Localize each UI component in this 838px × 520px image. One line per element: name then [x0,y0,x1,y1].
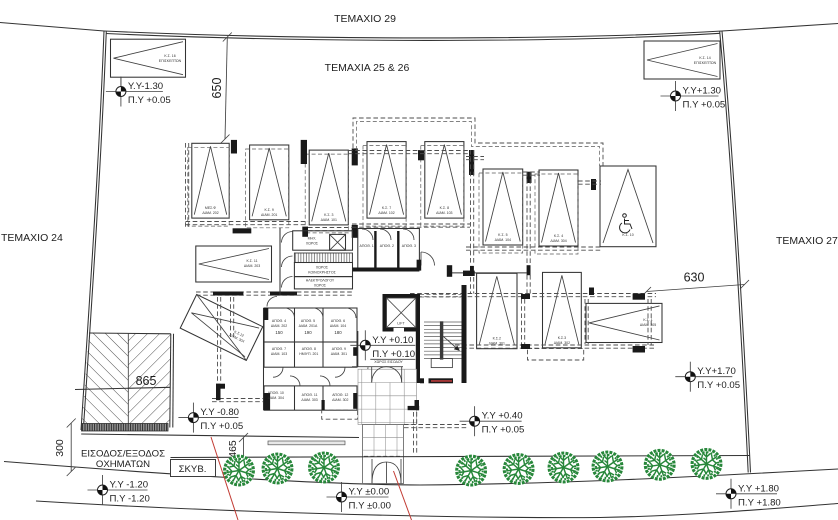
svg-text:LIFT: LIFT [397,322,405,326]
svg-text:Κ.Σ.3: Κ.Σ.3 [558,336,566,340]
svg-text:650: 650 [210,78,224,99]
svg-text:ΑΠΟΘ. 2: ΑΠΟΘ. 2 [380,244,394,248]
svg-text:ΑΠΟΘ. 1: ΑΠΟΘ. 1 [359,244,373,248]
svg-text:ΑΠΟΘ. 12: ΑΠΟΘ. 12 [332,393,348,397]
svg-text:ΑΠΟΘ. 6: ΑΠΟΘ. 6 [331,319,345,323]
svg-text:Κ.Σ. 9: Κ.Σ. 9 [265,208,274,212]
svg-text:Κ.Σ. 3: Κ.Σ. 3 [324,213,333,217]
svg-text:190: 190 [304,330,312,335]
svg-text:ΑΠΟΘ. 7: ΑΠΟΘ. 7 [272,347,286,351]
svg-text:ΔΙΑΜ. 201: ΔΙΑΜ. 201 [261,213,277,217]
svg-text:ΔΙΑΜ. 101: ΔΙΑΜ. 101 [321,218,337,222]
svg-text:Κ.Σ. 7: Κ.Σ. 7 [382,206,391,210]
svg-text:ΔΙΑΜ. 104: ΔΙΑΜ. 104 [495,238,511,242]
svg-text:Υ.Υ +1.80: Υ.Υ +1.80 [738,483,779,494]
svg-text:Υ.Υ-1.30: Υ.Υ-1.30 [128,81,163,92]
svg-text:ΔΙΑΜ. 303: ΔΙΑΜ. 303 [301,398,317,402]
svg-text:ΧΩΡΟΣ: ΧΩΡΟΣ [314,284,327,288]
svg-text:ΗΛΕΚΤΡΟΛΟΓΟΥ: ΗΛΕΚΤΡΟΛΟΓΟΥ [306,279,335,283]
svg-text:865: 865 [136,374,157,388]
svg-text:ΑΠΟΘ. 8: ΑΠΟΘ. 8 [302,347,316,351]
svg-text:ΔΙΑΜ. 102: ΔΙΑΜ. 102 [378,211,394,215]
svg-text:Κ.Σ. 16: Κ.Σ. 16 [164,54,175,58]
svg-text:ΔΙΑΜ. 203: ΔΙΑΜ. 203 [244,264,260,268]
svg-text:Κ.Σ. 8: Κ.Σ. 8 [440,206,449,210]
svg-text:ΔΙΑΜ. 301: ΔΙΑΜ. 301 [331,352,347,356]
svg-text:ΑΠΟΘ. 4: ΑΠΟΘ. 4 [272,319,286,323]
svg-text:ΑΠΟΘ. 9: ΑΠΟΘ. 9 [332,347,346,351]
svg-text:ΑΠΟΘ. 10: ΑΠΟΘ. 10 [268,391,284,395]
svg-text:Π.Υ +0.05: Π.Υ +0.05 [683,100,726,111]
svg-text:ΔΙΑΜ. 302: ΔΙΑΜ. 302 [554,341,570,345]
svg-text:Π.Υ +1.80: Π.Υ +1.80 [738,497,781,508]
svg-text:ΟΧΗΜΑΤΩΝ: ΟΧΗΜΑΤΩΝ [96,459,150,470]
svg-text:ΔΙΑΜ. 202: ΔΙΑΜ. 202 [271,324,287,328]
svg-text:Υ.Υ ±0.00: Υ.Υ ±0.00 [349,487,390,498]
svg-text:ΔΙΑΜ. 202: ΔΙΑΜ. 202 [202,211,218,215]
svg-text:Υ.Υ +0.10: Υ.Υ +0.10 [372,335,413,346]
svg-text:630: 630 [684,271,705,285]
svg-text:ΜΗΧ.: ΜΗΧ. [308,237,317,241]
svg-text:Π.Υ ±0.00: Π.Υ ±0.00 [349,501,391,512]
svg-text:ΗΜΙΥΠ. 201: ΗΜΙΥΠ. 201 [299,352,318,356]
svg-text:Κ.Σ. 11: Κ.Σ. 11 [246,259,257,263]
svg-text:ΕΠΙΣΚΕΠΤΩΝ: ΕΠΙΣΚΕΠΤΩΝ [159,59,182,63]
svg-text:Υ.Υ -1.20: Υ.Υ -1.20 [110,480,149,491]
svg-text:ΤΕΜΑΧΙΟ 24: ΤΕΜΑΧΙΟ 24 [1,232,63,244]
svg-text:Κ.Σ. 5: Κ.Σ. 5 [498,233,507,237]
svg-text:ΔΙΑΜ. 304: ΔΙΑΜ. 304 [550,239,566,243]
svg-text:Π.Υ +0.05: Π.Υ +0.05 [200,421,243,432]
svg-text:Κ.Σ. 4: Κ.Σ. 4 [554,234,563,238]
svg-text:ΔΙΑΜ. 201Α: ΔΙΑΜ. 201Α [299,324,318,328]
svg-text:ΑΠΟΘ. 11: ΑΠΟΘ. 11 [302,393,318,397]
svg-text:Υ.Υ +0.40: Υ.Υ +0.40 [482,411,523,422]
svg-text:Κ.Σ. 10: Κ.Σ. 10 [622,233,633,237]
svg-text:Π.Υ +0.05: Π.Υ +0.05 [697,380,740,391]
svg-text:ΕΙΣΟΔΟΣ/ΕΞΟΔΟΣ: ΕΙΣΟΔΟΣ/ΕΞΟΔΟΣ [81,449,165,460]
svg-text:ΔΙΑΜ. 103: ΔΙΑΜ. 103 [436,211,452,215]
svg-text:150: 150 [275,330,283,335]
svg-text:ΣΚΥΒ.: ΣΚΥΒ. [179,464,207,475]
svg-text:ΤΕΜΑΧΙΟ 29: ΤΕΜΑΧΙΟ 29 [334,13,396,25]
svg-text:Υ.Υ+1.70: Υ.Υ+1.70 [697,366,736,377]
svg-text:ΧΩΡΟΣ ΕΙΣΟΔΟΥ: ΧΩΡΟΣ ΕΙΣΟΔΟΥ [374,360,403,364]
svg-text:Π.Υ -1.20: Π.Υ -1.20 [110,494,150,505]
svg-text:ΚΟΙΝΟΧΡΗΣΤΟΣ: ΚΟΙΝΟΧΡΗΣΤΟΣ [308,271,336,275]
svg-text:Υ.Υ+1.30: Υ.Υ+1.30 [683,86,722,97]
svg-text:300: 300 [54,439,66,457]
svg-text:ΔΙΑΜ. 302: ΔΙΑΜ. 302 [332,398,348,402]
svg-text:ΜΕΣ.Φ: ΜΕΣ.Φ [205,206,216,210]
svg-text:ΔΙΑΜ. 304: ΔΙΑΜ. 304 [268,396,284,400]
svg-text:ΕΠΙΣΚΕΠΤΩΝ: ΕΠΙΣΚΕΠΤΩΝ [694,61,717,65]
svg-text:Π.Υ +0.05: Π.Υ +0.05 [482,425,525,436]
svg-text:ΧΩΡΟΣ: ΧΩΡΟΣ [306,242,319,246]
svg-text:Π.Υ +0.05: Π.Υ +0.05 [128,95,171,106]
svg-text:ΔΙΑΜ. 103: ΔΙΑΜ. 103 [271,352,287,356]
svg-text:Κ.Σ.2: Κ.Σ.2 [493,337,501,341]
svg-text:180: 180 [334,330,342,335]
svg-text:ΧΩΡΟΣ: ΧΩΡΟΣ [316,266,329,270]
svg-text:Υ.Υ -0.80: Υ.Υ -0.80 [200,407,239,418]
svg-text:ΑΠΟΘ. 5: ΑΠΟΘ. 5 [301,319,315,323]
svg-text:ΤΕΜΑΧΙΑ 25 & 26: ΤΕΜΑΧΙΑ 25 & 26 [325,62,410,74]
svg-text:ΔΙΑΜ. 104: ΔΙΑΜ. 104 [330,324,346,328]
svg-text:Κ.Σ. 14: Κ.Σ. 14 [699,56,710,60]
svg-text:ΤΕΜΑΧΙΟ 27: ΤΕΜΑΧΙΟ 27 [776,235,838,247]
svg-text:Π.Υ +0.10: Π.Υ +0.10 [372,349,415,360]
svg-text:ΑΠΟΘ. 3: ΑΠΟΘ. 3 [402,244,416,248]
